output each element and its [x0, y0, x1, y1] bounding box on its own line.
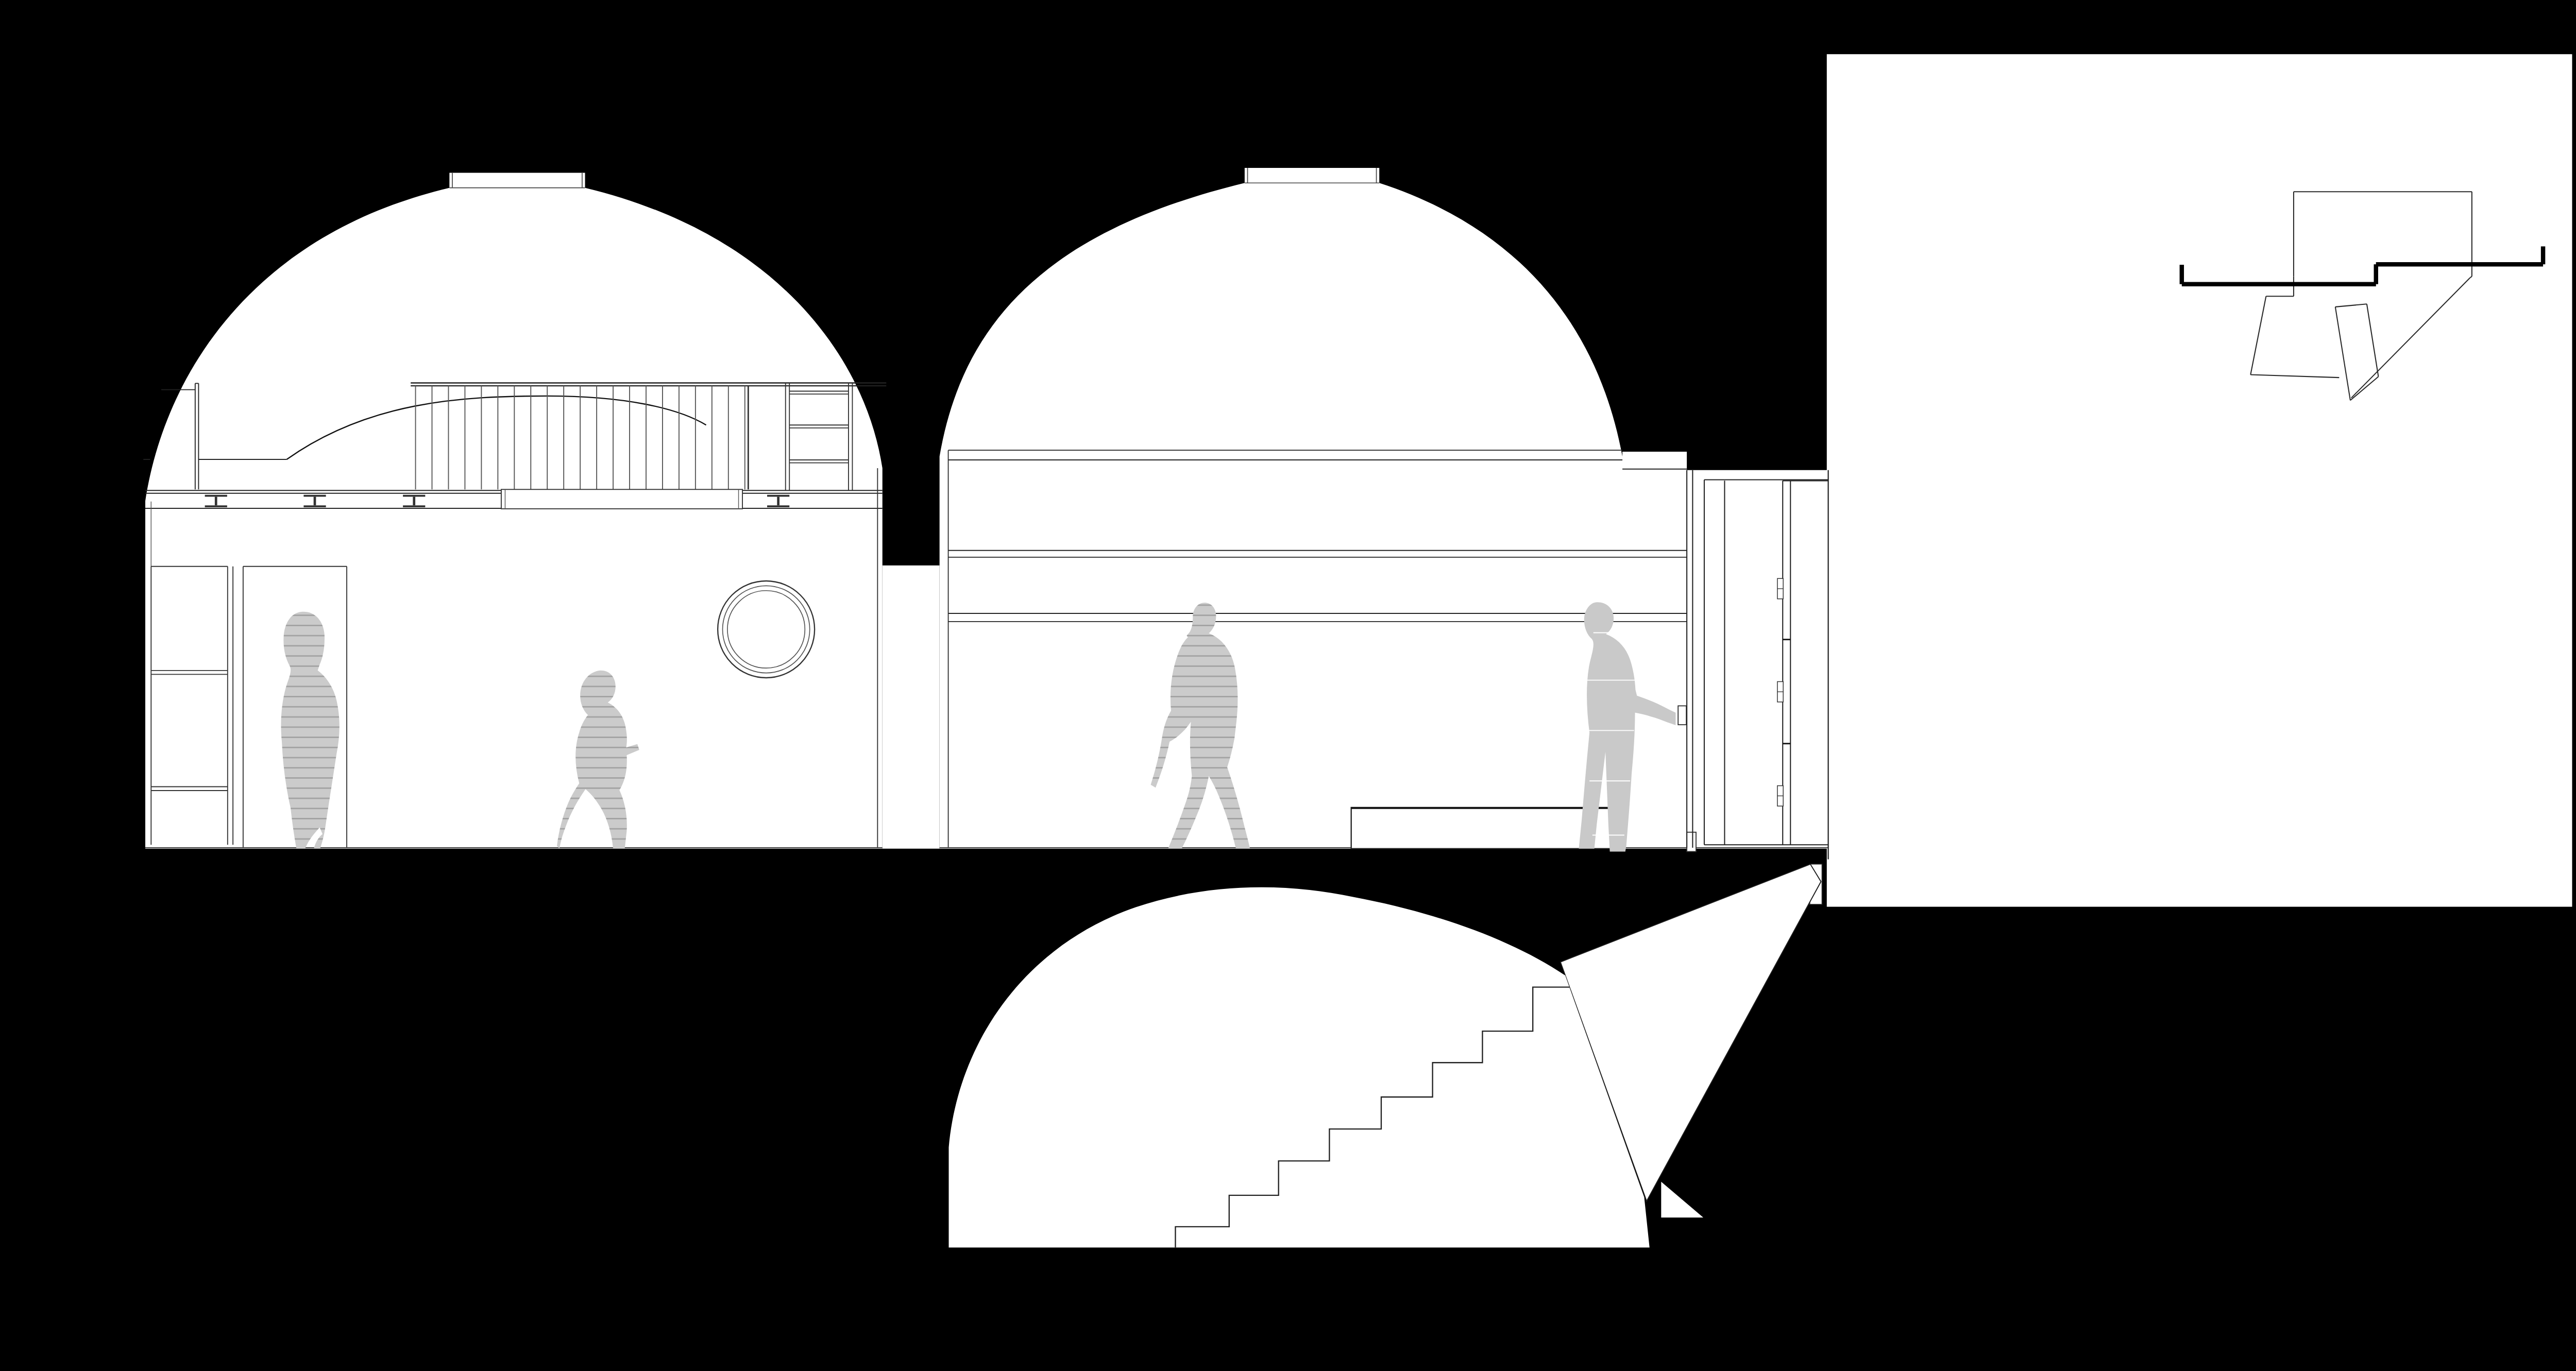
white-key-plan-panel [1827, 54, 2572, 906]
passage-opening [883, 565, 940, 849]
sliding-wall-base-block [1687, 832, 1696, 852]
architectural-section-drawing [0, 0, 2576, 1371]
balcony-edge-beam [501, 489, 742, 509]
display-bench [1351, 808, 1616, 849]
door-handle [1678, 706, 1686, 725]
balcony-guardrail-balusters [416, 386, 745, 489]
